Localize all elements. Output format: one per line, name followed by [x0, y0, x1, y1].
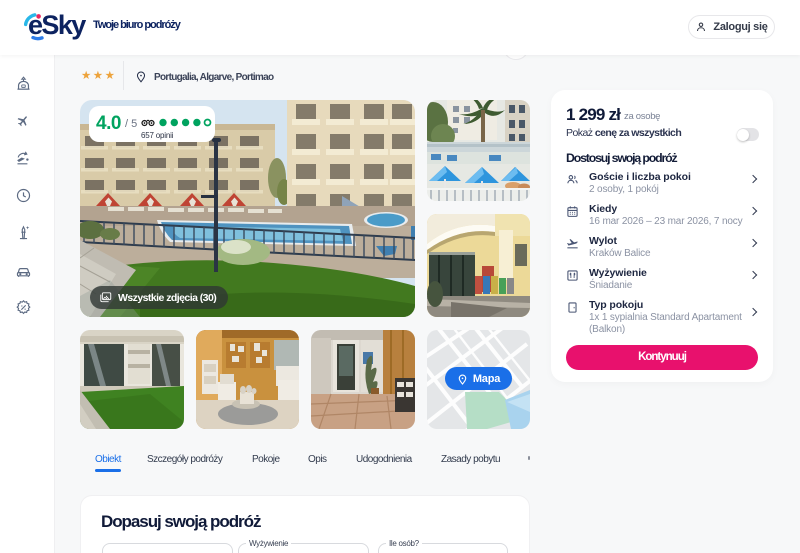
svg-text:eSky: eSky [28, 10, 86, 40]
